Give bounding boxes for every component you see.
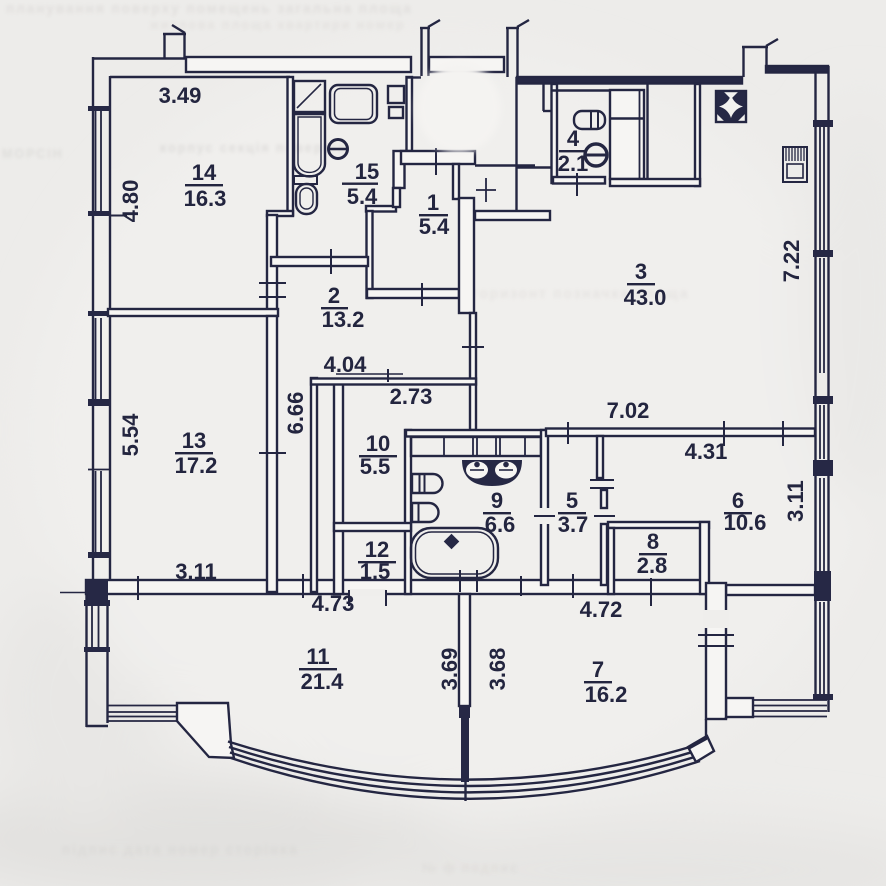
svg-text:6.6: 6.6	[485, 512, 516, 537]
svg-text:3.11: 3.11	[175, 559, 217, 584]
svg-text:7.22: 7.22	[779, 240, 804, 283]
svg-text:1: 1	[427, 190, 439, 215]
svg-text:4: 4	[567, 126, 580, 151]
svg-text:16.3: 16.3	[184, 186, 227, 211]
svg-text:1.5: 1.5	[360, 559, 391, 584]
svg-text:10.6: 10.6	[724, 510, 767, 535]
svg-text:16.2: 16.2	[585, 682, 628, 707]
svg-text:МОРСІН: МОРСІН	[2, 147, 64, 161]
svg-text:15: 15	[355, 159, 379, 184]
svg-text:3.49: 3.49	[159, 83, 202, 108]
svg-text:13: 13	[182, 428, 206, 453]
svg-text:4.31: 4.31	[685, 439, 728, 464]
svg-text:43.0: 43.0	[624, 285, 667, 310]
svg-text:8: 8	[647, 529, 659, 554]
svg-text:7: 7	[592, 657, 604, 682]
svg-text:4.73: 4.73	[312, 591, 355, 616]
svg-text:5.5: 5.5	[360, 454, 391, 479]
svg-text:9: 9	[491, 488, 503, 513]
svg-text:планування поверху помещень за: планування поверху помещень загальна пло…	[6, 1, 413, 16]
svg-text:6.66: 6.66	[283, 392, 308, 435]
svg-text:житлова площа квартири номер: житлова площа квартири номер	[149, 18, 406, 32]
svg-text:3.7: 3.7	[558, 512, 589, 537]
svg-text:5.4: 5.4	[347, 184, 378, 209]
svg-text:4.72: 4.72	[580, 597, 623, 622]
svg-text:2.1: 2.1	[558, 151, 589, 176]
svg-text:2.73: 2.73	[390, 384, 433, 409]
svg-text:3.11: 3.11	[783, 480, 808, 522]
svg-text:7.02: 7.02	[607, 398, 650, 423]
svg-text:корпус секція поверхів: корпус секція поверхів	[160, 141, 347, 155]
svg-text:11: 11	[306, 644, 329, 669]
svg-text:3: 3	[635, 259, 647, 284]
svg-text:2: 2	[328, 283, 340, 308]
svg-text:4.80: 4.80	[118, 180, 143, 223]
svg-text:3.68: 3.68	[485, 648, 510, 691]
svg-text:13.2: 13.2	[322, 307, 365, 332]
svg-text:підпис дата номер сторінка: підпис дата номер сторінка	[62, 842, 298, 857]
svg-text:21.4: 21.4	[301, 669, 345, 694]
svg-text:5.54: 5.54	[118, 413, 143, 457]
svg-text:4.04: 4.04	[324, 352, 368, 377]
svg-text:№ ф подпис: № ф подпис	[422, 861, 519, 875]
svg-text:14: 14	[192, 160, 217, 185]
svg-text:2.8: 2.8	[637, 553, 668, 578]
svg-text:17.2: 17.2	[175, 453, 218, 478]
svg-text:5: 5	[566, 488, 578, 513]
svg-text:10: 10	[366, 431, 390, 456]
svg-text:5.4: 5.4	[419, 214, 450, 239]
svg-text:3.69: 3.69	[437, 648, 462, 691]
